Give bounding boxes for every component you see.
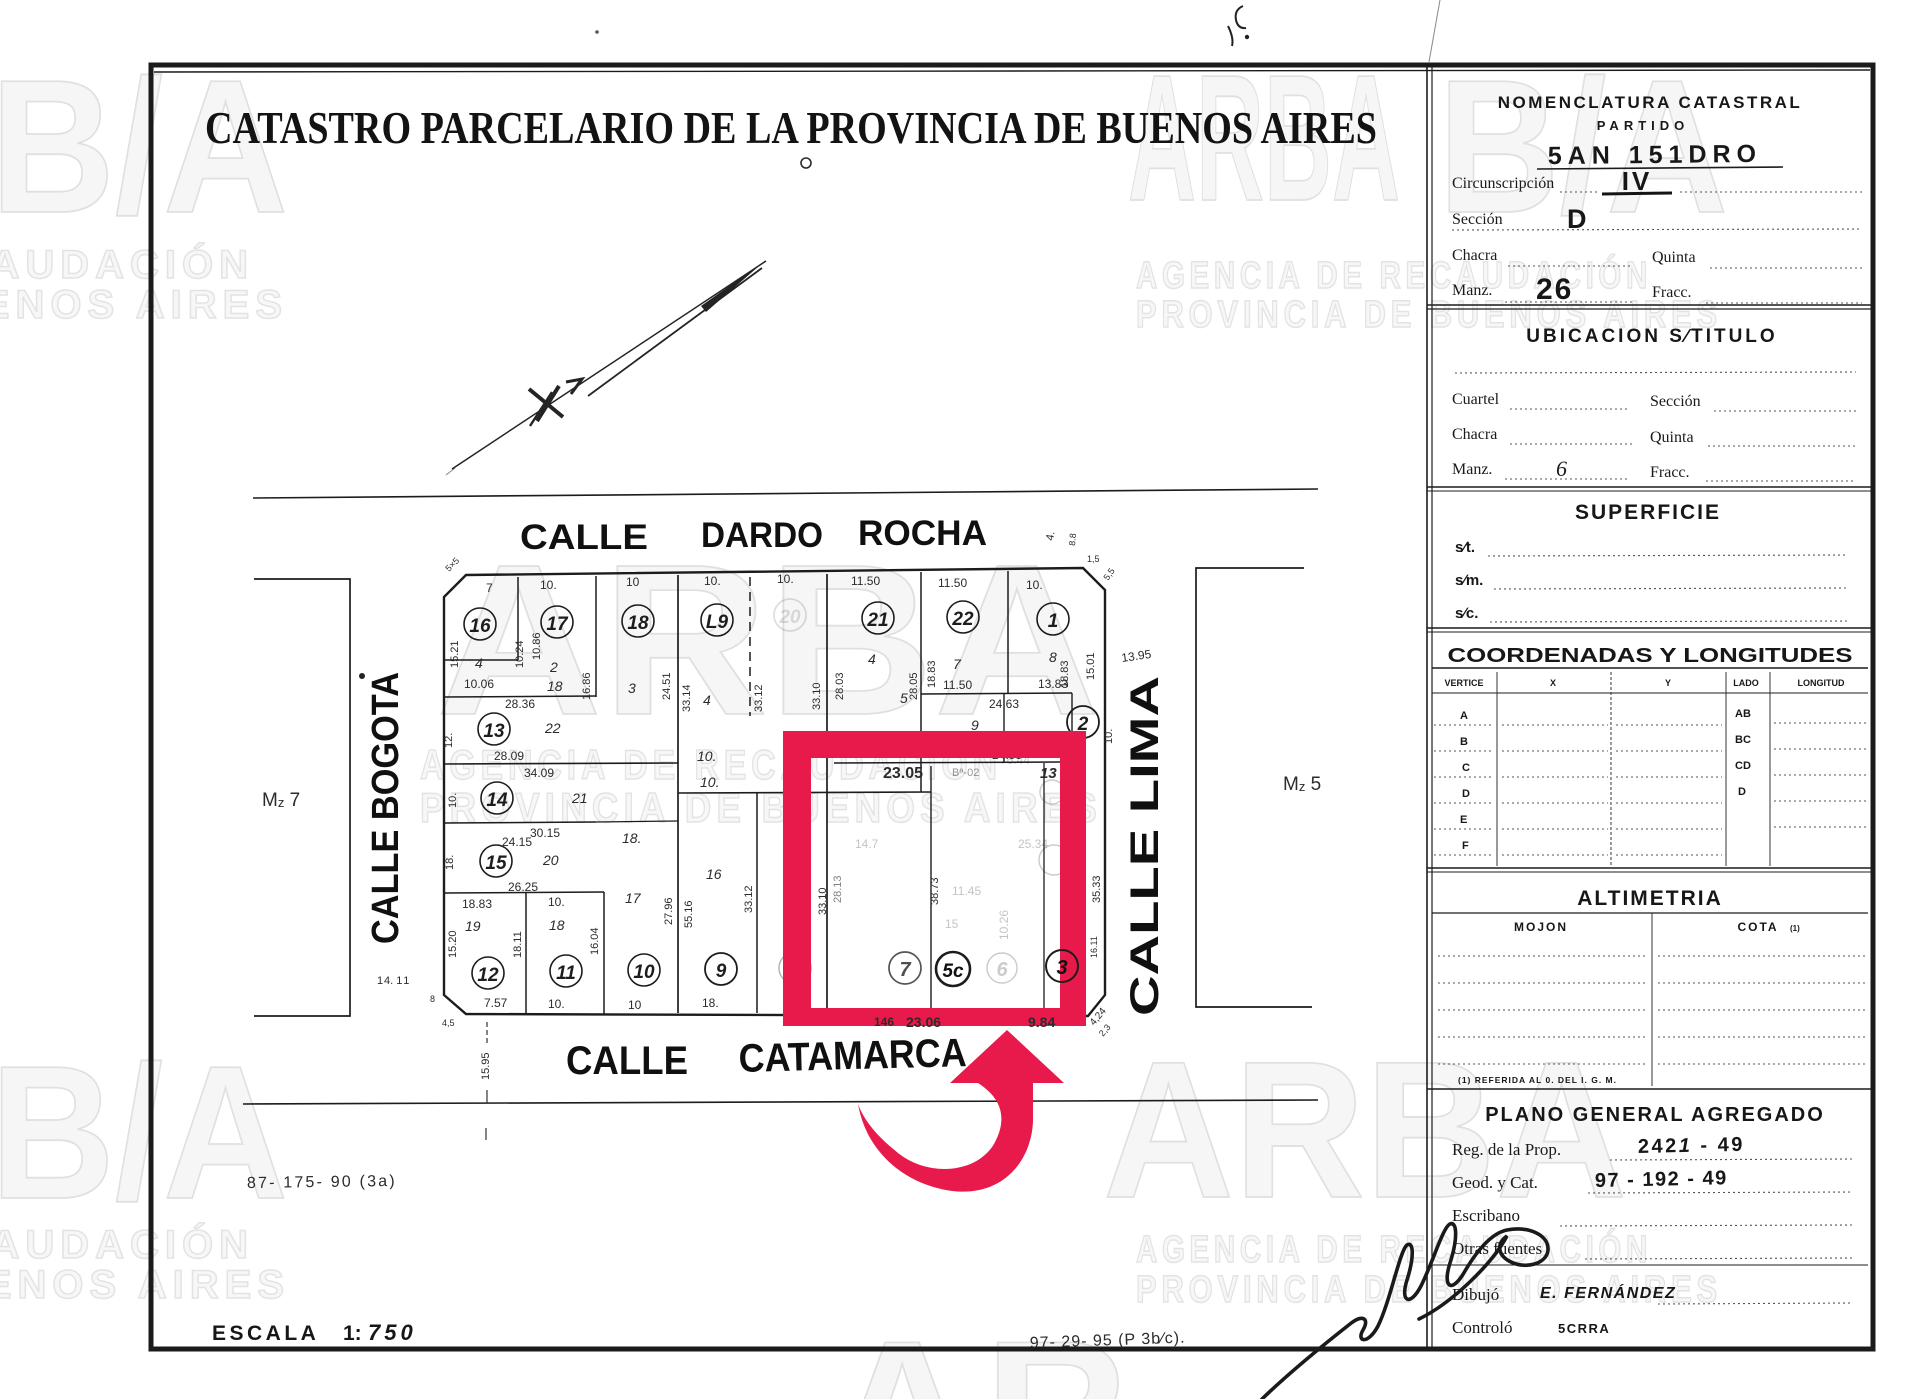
svg-text:14: 14 xyxy=(486,790,508,811)
svg-text:Bª-02: Bª-02 xyxy=(952,767,979,779)
svg-text:7.57: 7.57 xyxy=(484,996,508,1010)
svg-text:Quinta: Quinta xyxy=(1650,429,1694,446)
svg-text:28.36: 28.36 xyxy=(505,697,535,711)
svg-text:4: 4 xyxy=(703,692,711,708)
svg-text:MOJON: MOJON xyxy=(1514,920,1568,934)
svg-text:24.15: 24.15 xyxy=(502,835,532,849)
svg-text:38.73: 38.73 xyxy=(929,877,941,905)
svg-text:10.: 10. xyxy=(697,748,716,764)
svg-text:10.: 10. xyxy=(447,793,459,808)
svg-text:Chacra: Chacra xyxy=(1452,247,1497,264)
svg-text:28.13: 28.13 xyxy=(832,875,844,903)
svg-text:Controló: Controló xyxy=(1452,1318,1512,1337)
svg-text:6: 6 xyxy=(1556,456,1567,481)
svg-text:CALLE: CALLE xyxy=(520,518,648,557)
svg-text:35.33: 35.33 xyxy=(1091,875,1103,903)
svg-text:28.05: 28.05 xyxy=(908,672,920,700)
svg-text:3: 3 xyxy=(1056,957,1067,979)
svg-text:33.12: 33.12 xyxy=(753,684,765,712)
svg-text:16.11: 16.11 xyxy=(1089,936,1099,958)
svg-text:IV: IV xyxy=(1622,166,1653,196)
svg-text:A: A xyxy=(1460,710,1468,722)
svg-text:5: 5 xyxy=(900,690,908,706)
svg-text:87- 175- 90 (3a): 87- 175- 90 (3a) xyxy=(247,1173,397,1192)
svg-text:16: 16 xyxy=(706,866,722,882)
svg-text:AGENCIA DE RECAUDACIÓN: AGENCIA DE RECAUDACIÓN xyxy=(1136,253,1652,297)
svg-text:LONGITUD: LONGITUD xyxy=(1798,678,1845,688)
svg-text:11.50: 11.50 xyxy=(943,678,972,692)
svg-text:12.: 12. xyxy=(443,733,455,748)
svg-text:4: 4 xyxy=(475,655,483,671)
svg-text:18: 18 xyxy=(549,917,565,933)
svg-text:13: 13 xyxy=(483,721,505,742)
svg-text:16: 16 xyxy=(469,616,491,637)
svg-text:ALTIMETRIA: ALTIMETRIA xyxy=(1577,887,1723,910)
svg-text:3: 3 xyxy=(628,680,636,696)
svg-text:NOMENCLATURA CATASTRAL: NOMENCLATURA CATASTRAL xyxy=(1498,93,1803,112)
svg-text:16.04: 16.04 xyxy=(589,927,601,955)
svg-text:Manz.: Manz. xyxy=(1452,461,1492,478)
svg-text:COORDENADAS Y LONGITUDES: COORDENADAS Y LONGITUDES xyxy=(1448,645,1853,667)
svg-text:X: X xyxy=(1550,678,1556,688)
svg-text:23.05: 23.05 xyxy=(883,765,923,782)
svg-text:34.09: 34.09 xyxy=(524,766,554,780)
svg-text:BUENOS AIRES: BUENOS AIRES xyxy=(0,1263,290,1307)
svg-text:1,5: 1,5 xyxy=(1087,554,1100,564)
svg-text:Chacra: Chacra xyxy=(1452,426,1497,443)
svg-text:15.21: 15.21 xyxy=(449,640,461,668)
svg-text:Sección: Sección xyxy=(1452,211,1503,228)
svg-text:18: 18 xyxy=(627,613,649,634)
svg-text:7: 7 xyxy=(953,656,962,672)
svg-text:5AN 151DRO: 5AN 151DRO xyxy=(1548,140,1763,170)
svg-text:10.: 10. xyxy=(548,997,565,1011)
svg-text:10.: 10. xyxy=(540,578,557,592)
svg-text:20: 20 xyxy=(542,852,559,868)
svg-text:17: 17 xyxy=(546,614,569,635)
svg-text:20: 20 xyxy=(778,607,801,628)
svg-text:DARDO: DARDO xyxy=(701,516,823,555)
svg-text:33.10: 33.10 xyxy=(817,887,829,915)
svg-text:10.: 10. xyxy=(777,572,794,586)
svg-text:15: 15 xyxy=(945,917,959,931)
svg-text:9: 9 xyxy=(716,961,727,982)
svg-text:s∕m.: s∕m. xyxy=(1455,572,1483,589)
svg-text:33.12: 33.12 xyxy=(743,885,755,913)
svg-text:PARTIDO: PARTIDO xyxy=(1597,118,1690,133)
svg-text:5c: 5c xyxy=(942,961,964,982)
svg-text:24.51: 24.51 xyxy=(661,672,673,700)
svg-text:9: 9 xyxy=(971,717,979,733)
svg-text:10.: 10. xyxy=(548,895,565,909)
svg-text:B/A: B/A xyxy=(0,1027,288,1239)
svg-text:Sección: Sección xyxy=(1650,393,1701,410)
svg-text:19: 19 xyxy=(465,918,481,934)
svg-text:15.20: 15.20 xyxy=(447,930,459,958)
svg-text:28.03: 28.03 xyxy=(834,672,846,700)
svg-text:18.: 18. xyxy=(622,830,641,846)
svg-text:18.: 18. xyxy=(702,996,719,1010)
svg-text:D: D xyxy=(1462,788,1470,800)
svg-text:750: 750 xyxy=(368,1320,417,1345)
svg-text:8.8: 8.8 xyxy=(1067,533,1078,546)
svg-text:SUPERFICIE: SUPERFICIE xyxy=(1575,501,1721,524)
svg-text:ROCHA: ROCHA xyxy=(858,514,987,553)
svg-text:D: D xyxy=(1738,786,1746,798)
svg-text:LADO: LADO xyxy=(1733,678,1759,688)
svg-text:10: 10 xyxy=(633,962,655,983)
svg-text:Fracc.: Fracc. xyxy=(1652,284,1692,301)
svg-text:Quinta: Quinta xyxy=(1652,249,1696,266)
svg-text:15.01: 15.01 xyxy=(1085,652,1097,680)
svg-text:11: 11 xyxy=(556,963,576,984)
svg-text:C: C xyxy=(1462,762,1470,774)
svg-text:21: 21 xyxy=(866,610,888,631)
svg-text:PROVINCIA DE BUENOS AIRES: PROVINCIA DE BUENOS AIRES xyxy=(420,784,1102,831)
svg-text:33.14: 33.14 xyxy=(681,684,693,712)
svg-text:7: 7 xyxy=(486,581,493,595)
svg-text:(1) REFERIDA AL 0. DEL I. G. M: (1) REFERIDA AL 0. DEL I. G. M. xyxy=(1458,1075,1617,1085)
svg-text:10: 10 xyxy=(628,998,642,1012)
svg-text:24.63: 24.63 xyxy=(989,697,1019,711)
svg-text:15.95: 15.95 xyxy=(480,1052,492,1080)
svg-text:16.86: 16.86 xyxy=(581,672,593,700)
svg-text:BUENOS AIRES: BUENOS AIRES xyxy=(0,283,288,327)
svg-text:AGENCIA DE RECAUDACIÓN: AGENCIA DE RECAUDACIÓN xyxy=(1136,1227,1652,1271)
svg-text:CATAMARCA: CATAMARCA xyxy=(738,1031,967,1081)
svg-text:12: 12 xyxy=(477,965,499,986)
svg-text:17: 17 xyxy=(625,890,642,906)
svg-text:14.7: 14.7 xyxy=(855,837,879,851)
svg-text:Geod. y Cat.: Geod. y Cat. xyxy=(1452,1173,1538,1192)
svg-text:ESCALA: ESCALA xyxy=(212,1322,319,1345)
svg-text:22: 22 xyxy=(544,720,561,736)
svg-text:Circunscripción: Circunscripción xyxy=(1452,175,1554,192)
svg-text:28.09: 28.09 xyxy=(494,749,524,763)
svg-text:CALLE: CALLE xyxy=(566,1039,688,1083)
svg-text:BC: BC xyxy=(1735,734,1751,746)
svg-text:ARBA: ARBA xyxy=(1103,1021,1627,1239)
svg-text:E: E xyxy=(1460,814,1467,826)
svg-text:Cuartel: Cuartel xyxy=(1452,391,1500,408)
svg-text:PLANO GENERAL AGREGADO: PLANO GENERAL AGREGADO xyxy=(1485,1104,1825,1126)
svg-text:Y: Y xyxy=(1665,678,1671,688)
svg-text:(1): (1) xyxy=(1790,924,1800,933)
svg-text:Reg. de la Prop.: Reg. de la Prop. xyxy=(1452,1140,1561,1159)
svg-text:10.: 10. xyxy=(1026,578,1043,592)
svg-text:10.: 10. xyxy=(704,574,721,588)
svg-text:CALLE LIMA: CALLE LIMA xyxy=(1123,676,1167,1016)
svg-text:10.26: 10.26 xyxy=(997,910,1011,940)
svg-text:4,5: 4,5 xyxy=(442,1018,455,1028)
svg-text:Manz.: Manz. xyxy=(1452,282,1492,299)
svg-text:146: 146 xyxy=(874,1015,894,1029)
svg-text:CALLE BOGOTA: CALLE BOGOTA xyxy=(365,672,407,944)
svg-text:18.83: 18.83 xyxy=(1059,660,1071,688)
svg-text:11.50: 11.50 xyxy=(851,574,880,588)
svg-text:23.06: 23.06 xyxy=(906,1014,941,1030)
svg-text:AGENCIA DE RECAUDACIÓN: AGENCIA DE RECAUDACIÓN xyxy=(0,1221,254,1267)
svg-text:11.45: 11.45 xyxy=(952,884,981,898)
svg-text:7: 7 xyxy=(899,959,911,981)
svg-text:21: 21 xyxy=(571,790,588,806)
svg-text:10.: 10. xyxy=(1103,729,1115,744)
svg-text:Fracc.: Fracc. xyxy=(1650,464,1690,481)
svg-text:6: 6 xyxy=(996,959,1008,981)
svg-text:UBICACION S∕TITULO: UBICACION S∕TITULO xyxy=(1526,326,1777,347)
svg-text:1: 1 xyxy=(1048,611,1059,632)
svg-text:4: 4 xyxy=(868,651,876,667)
svg-text:B: B xyxy=(1460,736,1468,748)
svg-text:E. FERNÁNDEZ: E. FERNÁNDEZ xyxy=(1540,1283,1676,1302)
svg-text:33.10: 33.10 xyxy=(811,682,823,710)
svg-text:8: 8 xyxy=(1049,649,1057,665)
svg-text:26: 26 xyxy=(1536,273,1573,306)
svg-text:VERTICE: VERTICE xyxy=(1444,678,1483,688)
svg-text:s∕c.: s∕c. xyxy=(1455,605,1478,622)
svg-text:AB: AB xyxy=(1735,708,1751,720)
svg-text:2: 2 xyxy=(549,659,558,675)
svg-text:5CRRA: 5CRRA xyxy=(1558,1321,1610,1336)
svg-text:Escribano: Escribano xyxy=(1452,1206,1520,1225)
svg-text:30.15: 30.15 xyxy=(530,826,560,840)
svg-text:Dibujó: Dibujó xyxy=(1452,1285,1499,1304)
svg-text:8: 8 xyxy=(430,994,435,1004)
svg-text:10.86: 10.86 xyxy=(531,632,543,660)
svg-text:s∕t.: s∕t. xyxy=(1455,539,1475,556)
svg-text:F: F xyxy=(1462,840,1469,852)
svg-text:9.84: 9.84 xyxy=(1028,1014,1055,1030)
svg-text:27.96: 27.96 xyxy=(663,897,675,925)
svg-text:26.25: 26.25 xyxy=(508,880,538,894)
svg-text:1 4. 1 1: 1 4. 1 1 xyxy=(377,975,409,987)
svg-text:10.24: 10.24 xyxy=(514,640,526,668)
svg-text:AGENCIA DE RECAUDACIÓN: AGENCIA DE RECAUDACIÓN xyxy=(0,241,254,287)
svg-text:15: 15 xyxy=(485,853,507,874)
svg-text:10.: 10. xyxy=(700,774,719,790)
svg-text:18.11: 18.11 xyxy=(512,931,524,958)
svg-text:L9: L9 xyxy=(706,612,729,633)
svg-text:1:: 1: xyxy=(343,1322,362,1345)
svg-text:18: 18 xyxy=(547,678,563,694)
svg-text:97 - 192 - 49: 97 - 192 - 49 xyxy=(1595,1167,1728,1192)
svg-text:55.16: 55.16 xyxy=(683,900,695,928)
svg-text:10.06: 10.06 xyxy=(464,677,494,691)
svg-text:COTA: COTA xyxy=(1737,920,1778,934)
svg-text:18.83: 18.83 xyxy=(462,897,492,911)
svg-text:18.83: 18.83 xyxy=(926,660,938,688)
svg-text:11.50: 11.50 xyxy=(938,576,967,590)
svg-text:10: 10 xyxy=(626,575,640,589)
svg-text:CATASTRO PARCELARIO DE LA PROV: CATASTRO PARCELARIO DE LA PROVINCIA DE B… xyxy=(205,102,1377,153)
svg-text:CD: CD xyxy=(1735,760,1751,772)
svg-text:13: 13 xyxy=(1040,765,1057,782)
svg-text:22: 22 xyxy=(951,609,974,630)
svg-text:18.: 18. xyxy=(444,855,456,870)
svg-text:2421 - 49: 2421 - 49 xyxy=(1638,1134,1745,1158)
